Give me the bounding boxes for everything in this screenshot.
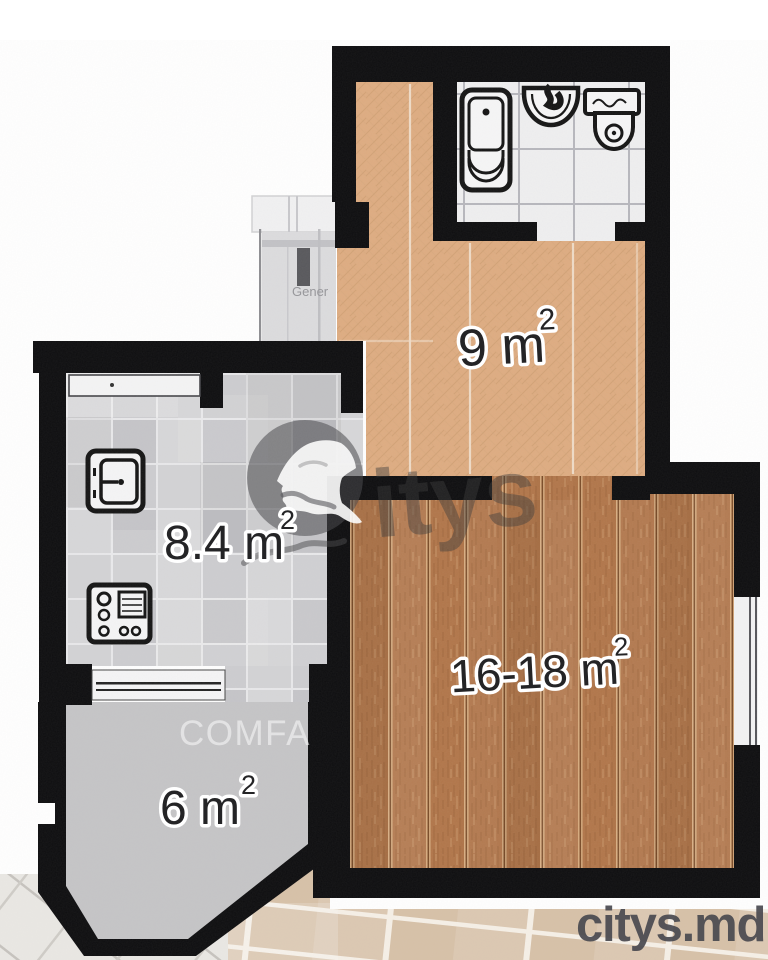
svg-text:2: 2 (280, 505, 295, 535)
svg-text:2: 2 (613, 631, 629, 662)
svg-text:8.4 m: 8.4 m (164, 517, 284, 570)
svg-text:2: 2 (241, 770, 256, 800)
svg-text:itys: itys (368, 438, 542, 559)
svg-text:COMFA: COMFA (179, 714, 311, 753)
svg-text:2: 2 (538, 303, 556, 337)
svg-text:Gener: Gener (292, 284, 329, 299)
svg-text:16-18 m: 16-18 m (449, 642, 620, 703)
svg-text:citys.md: citys.md (576, 898, 765, 952)
svg-text:9 m: 9 m (457, 316, 547, 378)
svg-text:6 m: 6 m (160, 782, 240, 835)
